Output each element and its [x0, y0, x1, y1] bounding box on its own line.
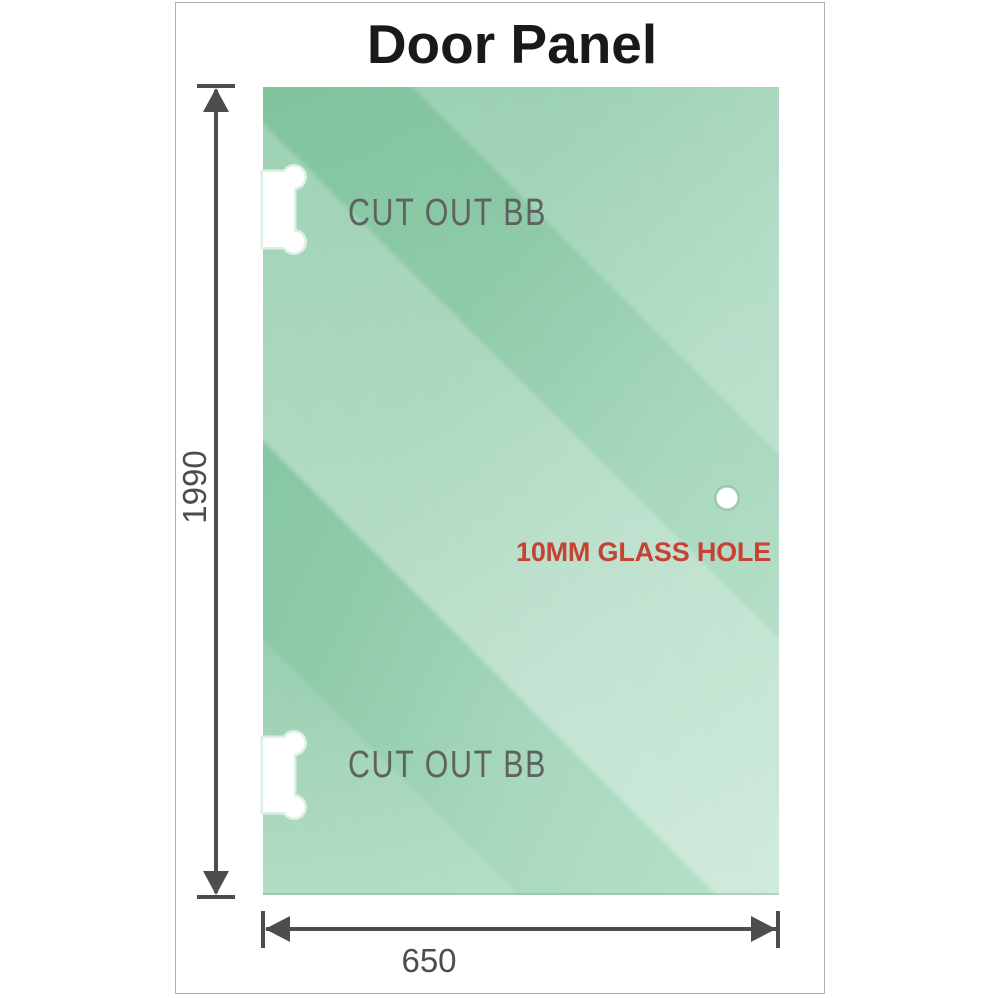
cutout-bottom-label: CUT OUT BB: [348, 744, 547, 787]
page-title: Door Panel: [186, 12, 838, 76]
cutout-top-label: CUT OUT BB: [348, 192, 547, 235]
dimension-height-label: 1990: [175, 427, 215, 547]
drawing-sheet: Door Panel: [0, 0, 1000, 1000]
dimension-width-label: 650: [369, 941, 489, 981]
glass-hole-label: 10MM GLASS HOLE: [516, 537, 771, 568]
